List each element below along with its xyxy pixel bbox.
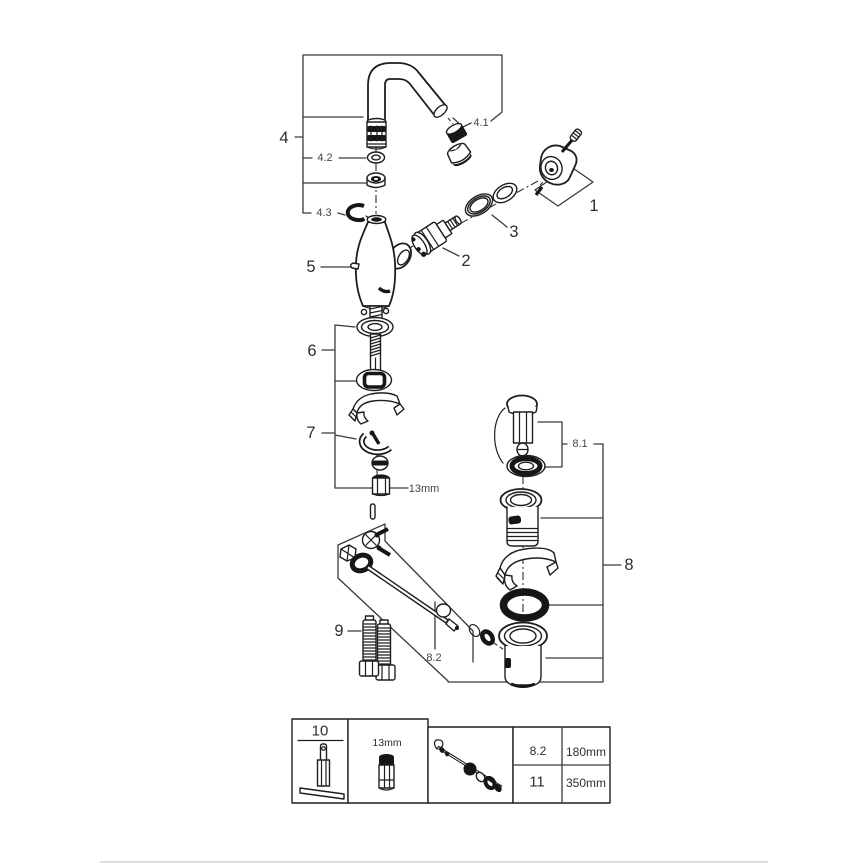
callout-labels: 4 4.1 4.2 4.3 1 2 3 5 6 7 13mm 8 8.1 8.2… <box>279 117 633 664</box>
cartridge <box>408 208 466 258</box>
callout-4-1-label: 4.1 <box>473 117 488 129</box>
callout-9-label: 9 <box>334 622 343 640</box>
callout-1-label: 1 <box>589 197 598 215</box>
callout-4-label: 4 <box>279 129 288 147</box>
callout-8-1-label: 8.1 <box>572 438 587 450</box>
socket-illustration <box>379 754 394 790</box>
callout-8-label: 8 <box>624 556 633 574</box>
exploded-parts-diagram: 4 4.1 4.2 4.3 1 2 3 5 6 7 13mm 8 8.1 8.2… <box>0 0 868 868</box>
legend-row2-ref: 11 <box>529 774 545 791</box>
spout-assembly <box>367 63 449 149</box>
legend-table: 10 13mm <box>292 719 610 803</box>
supply-hoses <box>360 616 396 680</box>
wrench-size-label: 13mm <box>409 483 440 495</box>
legend-row1-ref: 8.2 <box>530 744 547 758</box>
drain-flange-upper <box>501 489 542 546</box>
screenshot-canvas: 4 4.1 4.2 4.3 1 2 3 5 6 7 13mm 8 8.1 8.2… <box>0 0 868 868</box>
callout-8-2-label: 8.2 <box>426 652 441 664</box>
mounting-hardware <box>349 393 404 496</box>
legend-row1-length: 180mm <box>566 745 606 759</box>
callout-5-label: 5 <box>306 258 315 276</box>
spout-bearing-ring <box>367 173 385 188</box>
callout-4-3-label: 4.3 <box>316 207 331 219</box>
drain-flange-lower <box>499 623 547 687</box>
legend-row2-length: 350mm <box>566 776 606 790</box>
drain-wedge <box>496 548 558 590</box>
callout-2-label: 2 <box>461 252 470 270</box>
o-ring-4-2 <box>368 152 385 163</box>
callout-4-2-label: 4.2 <box>317 152 332 164</box>
faucet-body <box>351 216 416 310</box>
mounting-stud-assembly <box>357 306 394 391</box>
legend-socket-size: 13mm <box>372 737 401 749</box>
escutcheon-rings <box>462 179 521 220</box>
drain-seal-ring <box>504 592 546 618</box>
popup-plug-assembly <box>495 396 545 477</box>
callout-6-label: 6 <box>307 342 316 360</box>
legend-tool-number: 10 <box>312 723 329 740</box>
callout-3-label: 3 <box>509 223 518 241</box>
aerator-assembly <box>444 121 473 169</box>
callout-7-label: 7 <box>306 424 315 442</box>
center-axes <box>376 118 548 652</box>
